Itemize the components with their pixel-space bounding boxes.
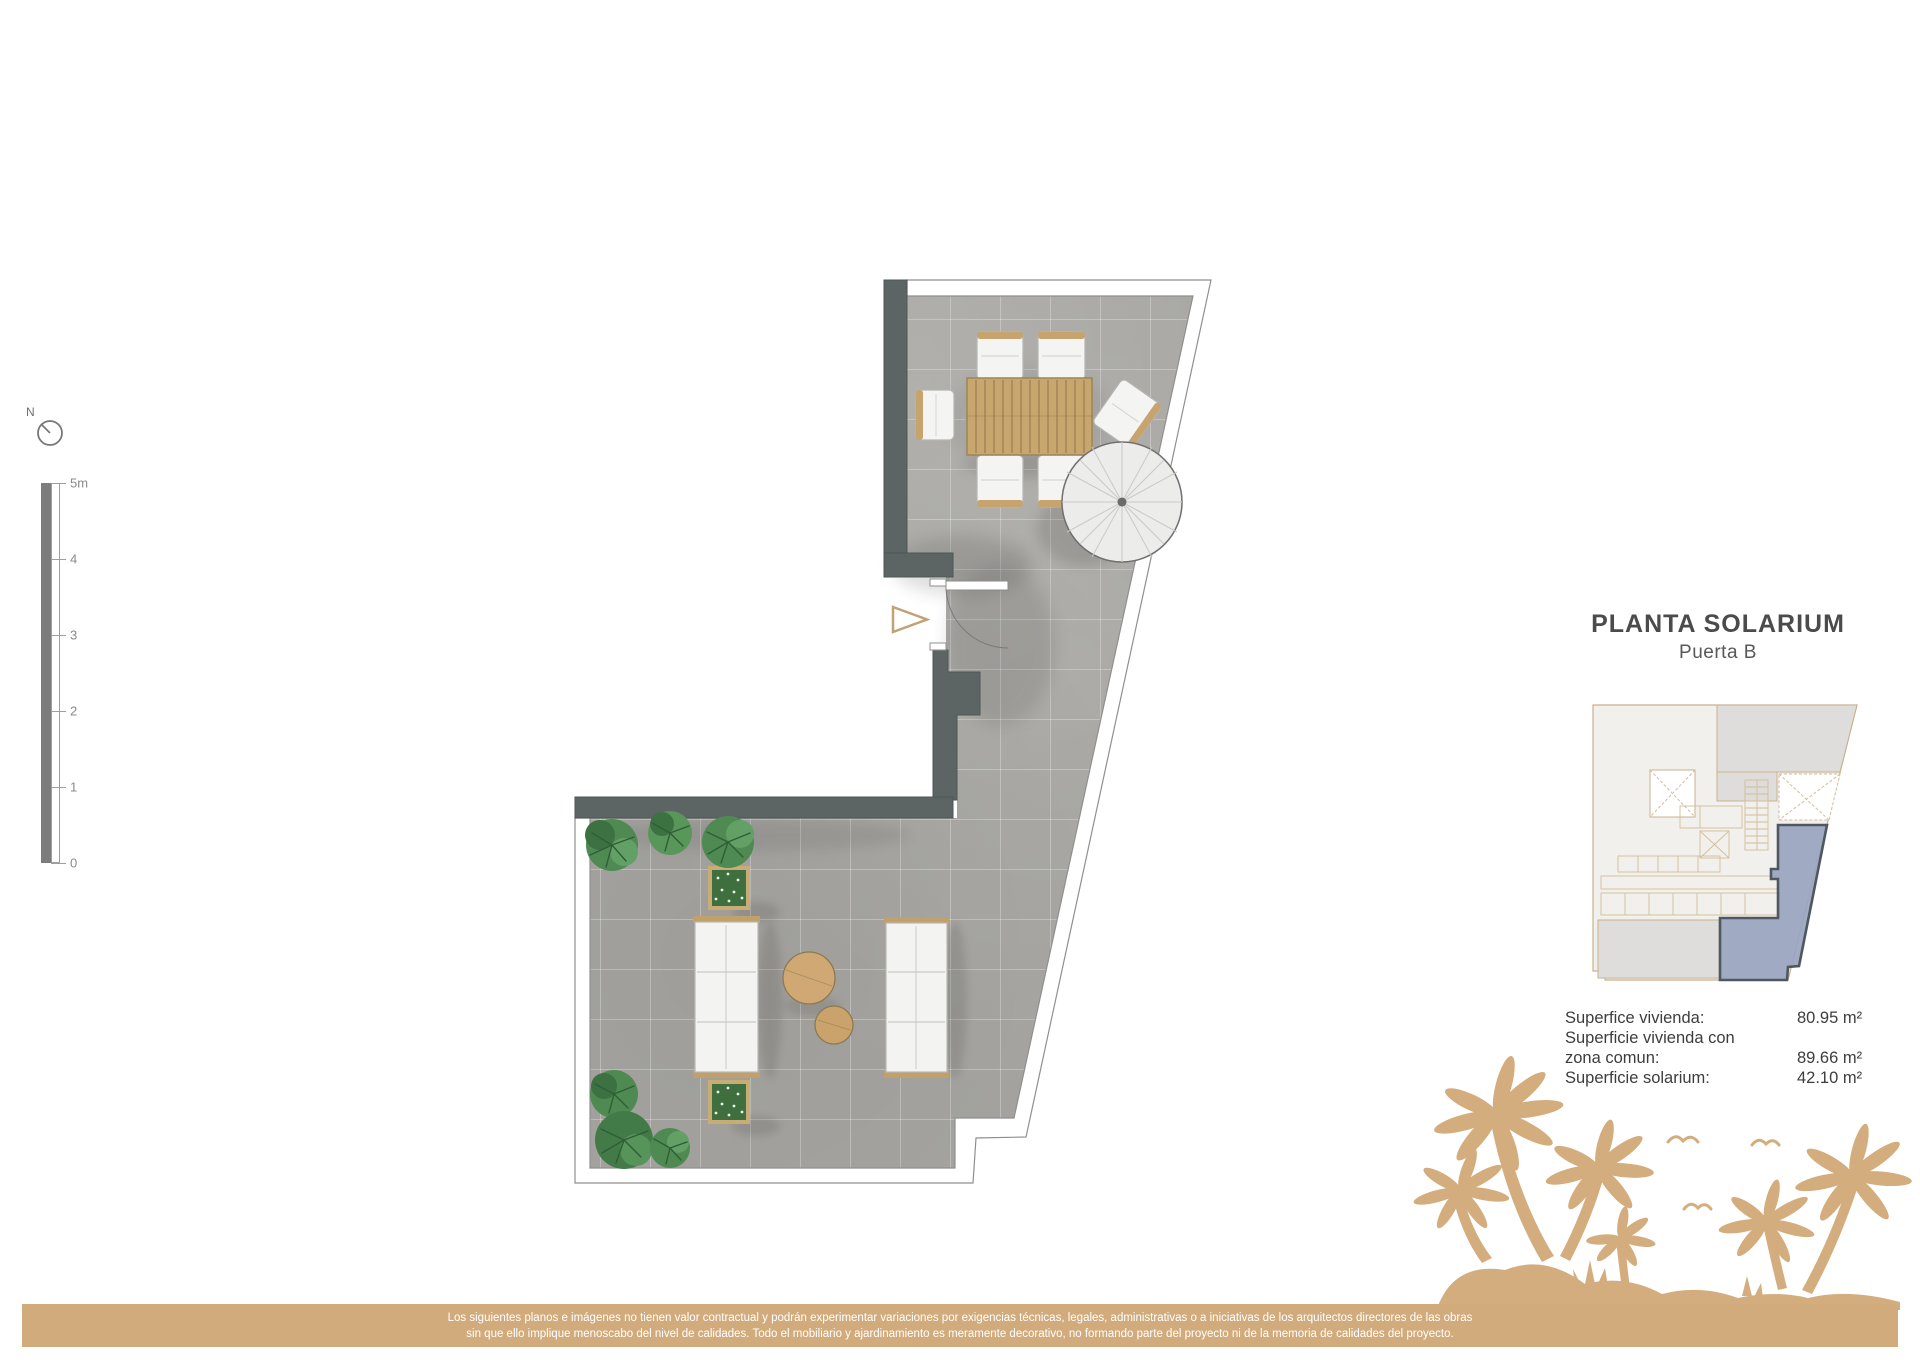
plant-cluster-bottom [590,1070,690,1169]
door-jamb-bottom [930,643,946,650]
scale-label-2: 2 [70,704,77,719]
door-leaf [946,581,1008,590]
scale-label-1: 1 [70,780,77,795]
scale-bar-white-strip [51,483,60,863]
scale-label-3: 3 [70,628,77,643]
key-plan [1593,705,1857,980]
surface-area-table: Superfice vivienda: 80.95 m² Superficie … [1565,1008,1867,1088]
page: { "compass": { "label": "N" }, "scale_ba… [0,0,1920,1370]
scale-tick [51,635,66,636]
palm-ground [1438,1260,1900,1310]
area-value: 80.95 m² [1797,1008,1867,1028]
plant-cluster-top [585,811,754,871]
area-label: zona comun: [1565,1048,1797,1068]
floor-plan-graphic [0,0,1920,1370]
palm-beach-decoration [1412,1054,1912,1310]
round-side-tables [783,952,853,1044]
key-plan-shaft-right [1779,774,1840,820]
area-value: 89.66 m² [1797,1048,1867,1068]
scale-tick [51,863,66,864]
area-value [1797,1028,1867,1048]
area-label: Superfice vivienda: [1565,1008,1797,1028]
scale-label-0: 0 [70,856,77,871]
scale-tick [51,787,66,788]
area-row: zona comun: 89.66 m² [1565,1048,1867,1068]
disclaimer-bar: Los siguientes planos e imágenes no tien… [22,1304,1898,1347]
key-plan-shaft-left [1650,770,1695,817]
dining-table [967,378,1092,455]
key-plan-gray-block-top [1717,705,1857,772]
north-label: N [26,405,35,419]
page-subtitle: Puerta B [1568,642,1868,664]
disclaimer-line-2: sin que ello implique menoscabo del nive… [22,1326,1898,1342]
scale-bar-dark-strip [41,483,51,863]
scale-tick [51,559,66,560]
area-row: Superficie vivienda con [1565,1028,1867,1048]
parasol-umbrella [1062,442,1182,562]
scale-tick [51,711,66,712]
entry-arrow-icon [893,607,927,632]
scale-label-4: 4 [70,552,77,567]
key-plan-gray-block-bottom [1598,920,1720,978]
page-title: PLANTA SOLARIUM [1568,610,1868,639]
wall-mid [933,650,980,800]
area-row: Superfice vivienda: 80.95 m² [1565,1008,1867,1028]
scale-tick [51,483,66,484]
area-label: Superficie solarium: [1565,1068,1797,1088]
north-compass-icon [38,421,62,445]
bird-icons [1668,1137,1779,1209]
scale-label-5m: 5m [70,476,88,491]
wall-upper-left [884,280,907,553]
area-row: Superficie solarium: 42.10 m² [1565,1068,1867,1088]
wall-upper-foot [884,553,953,577]
area-value: 42.10 m² [1797,1068,1867,1088]
door-jamb-top [930,579,946,586]
area-label: Superficie vivienda con [1565,1028,1797,1048]
disclaimer-line-1: Los siguientes planos e imágenes no tien… [22,1310,1898,1326]
title-block: PLANTA SOLARIUM Puerta B [1568,610,1868,664]
wall-lower [575,797,953,818]
